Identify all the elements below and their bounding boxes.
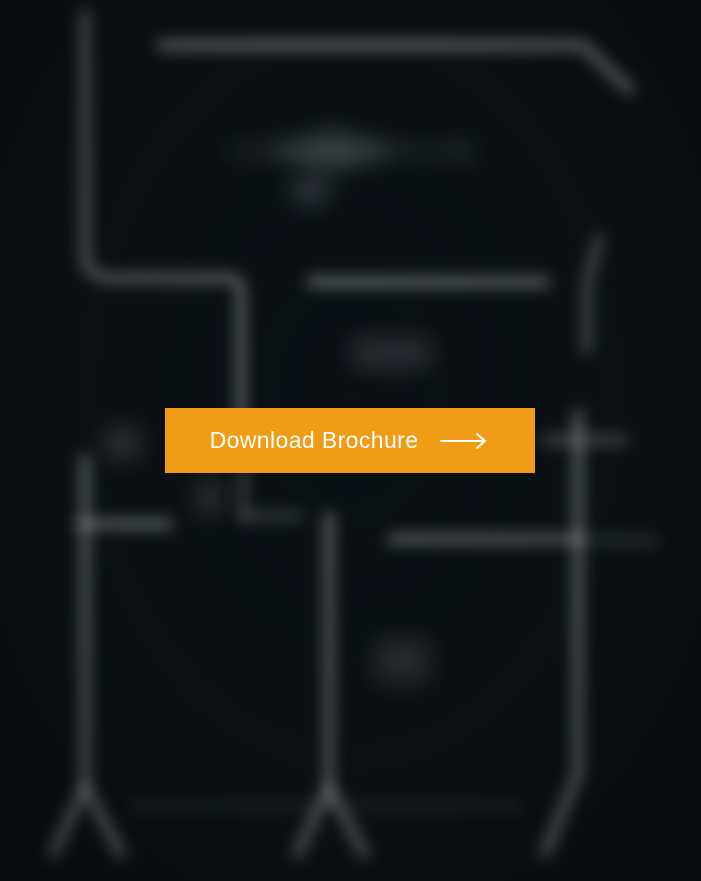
download-brochure-label: Download Brochure [210, 429, 419, 452]
arrow-right-icon [438, 432, 490, 450]
brochure-section: Download Brochure [0, 0, 701, 881]
floorplan-label-blobs [104, 337, 432, 683]
download-brochure-button[interactable]: Download Brochure [165, 408, 535, 473]
floorplan-symbol [229, 128, 471, 209]
